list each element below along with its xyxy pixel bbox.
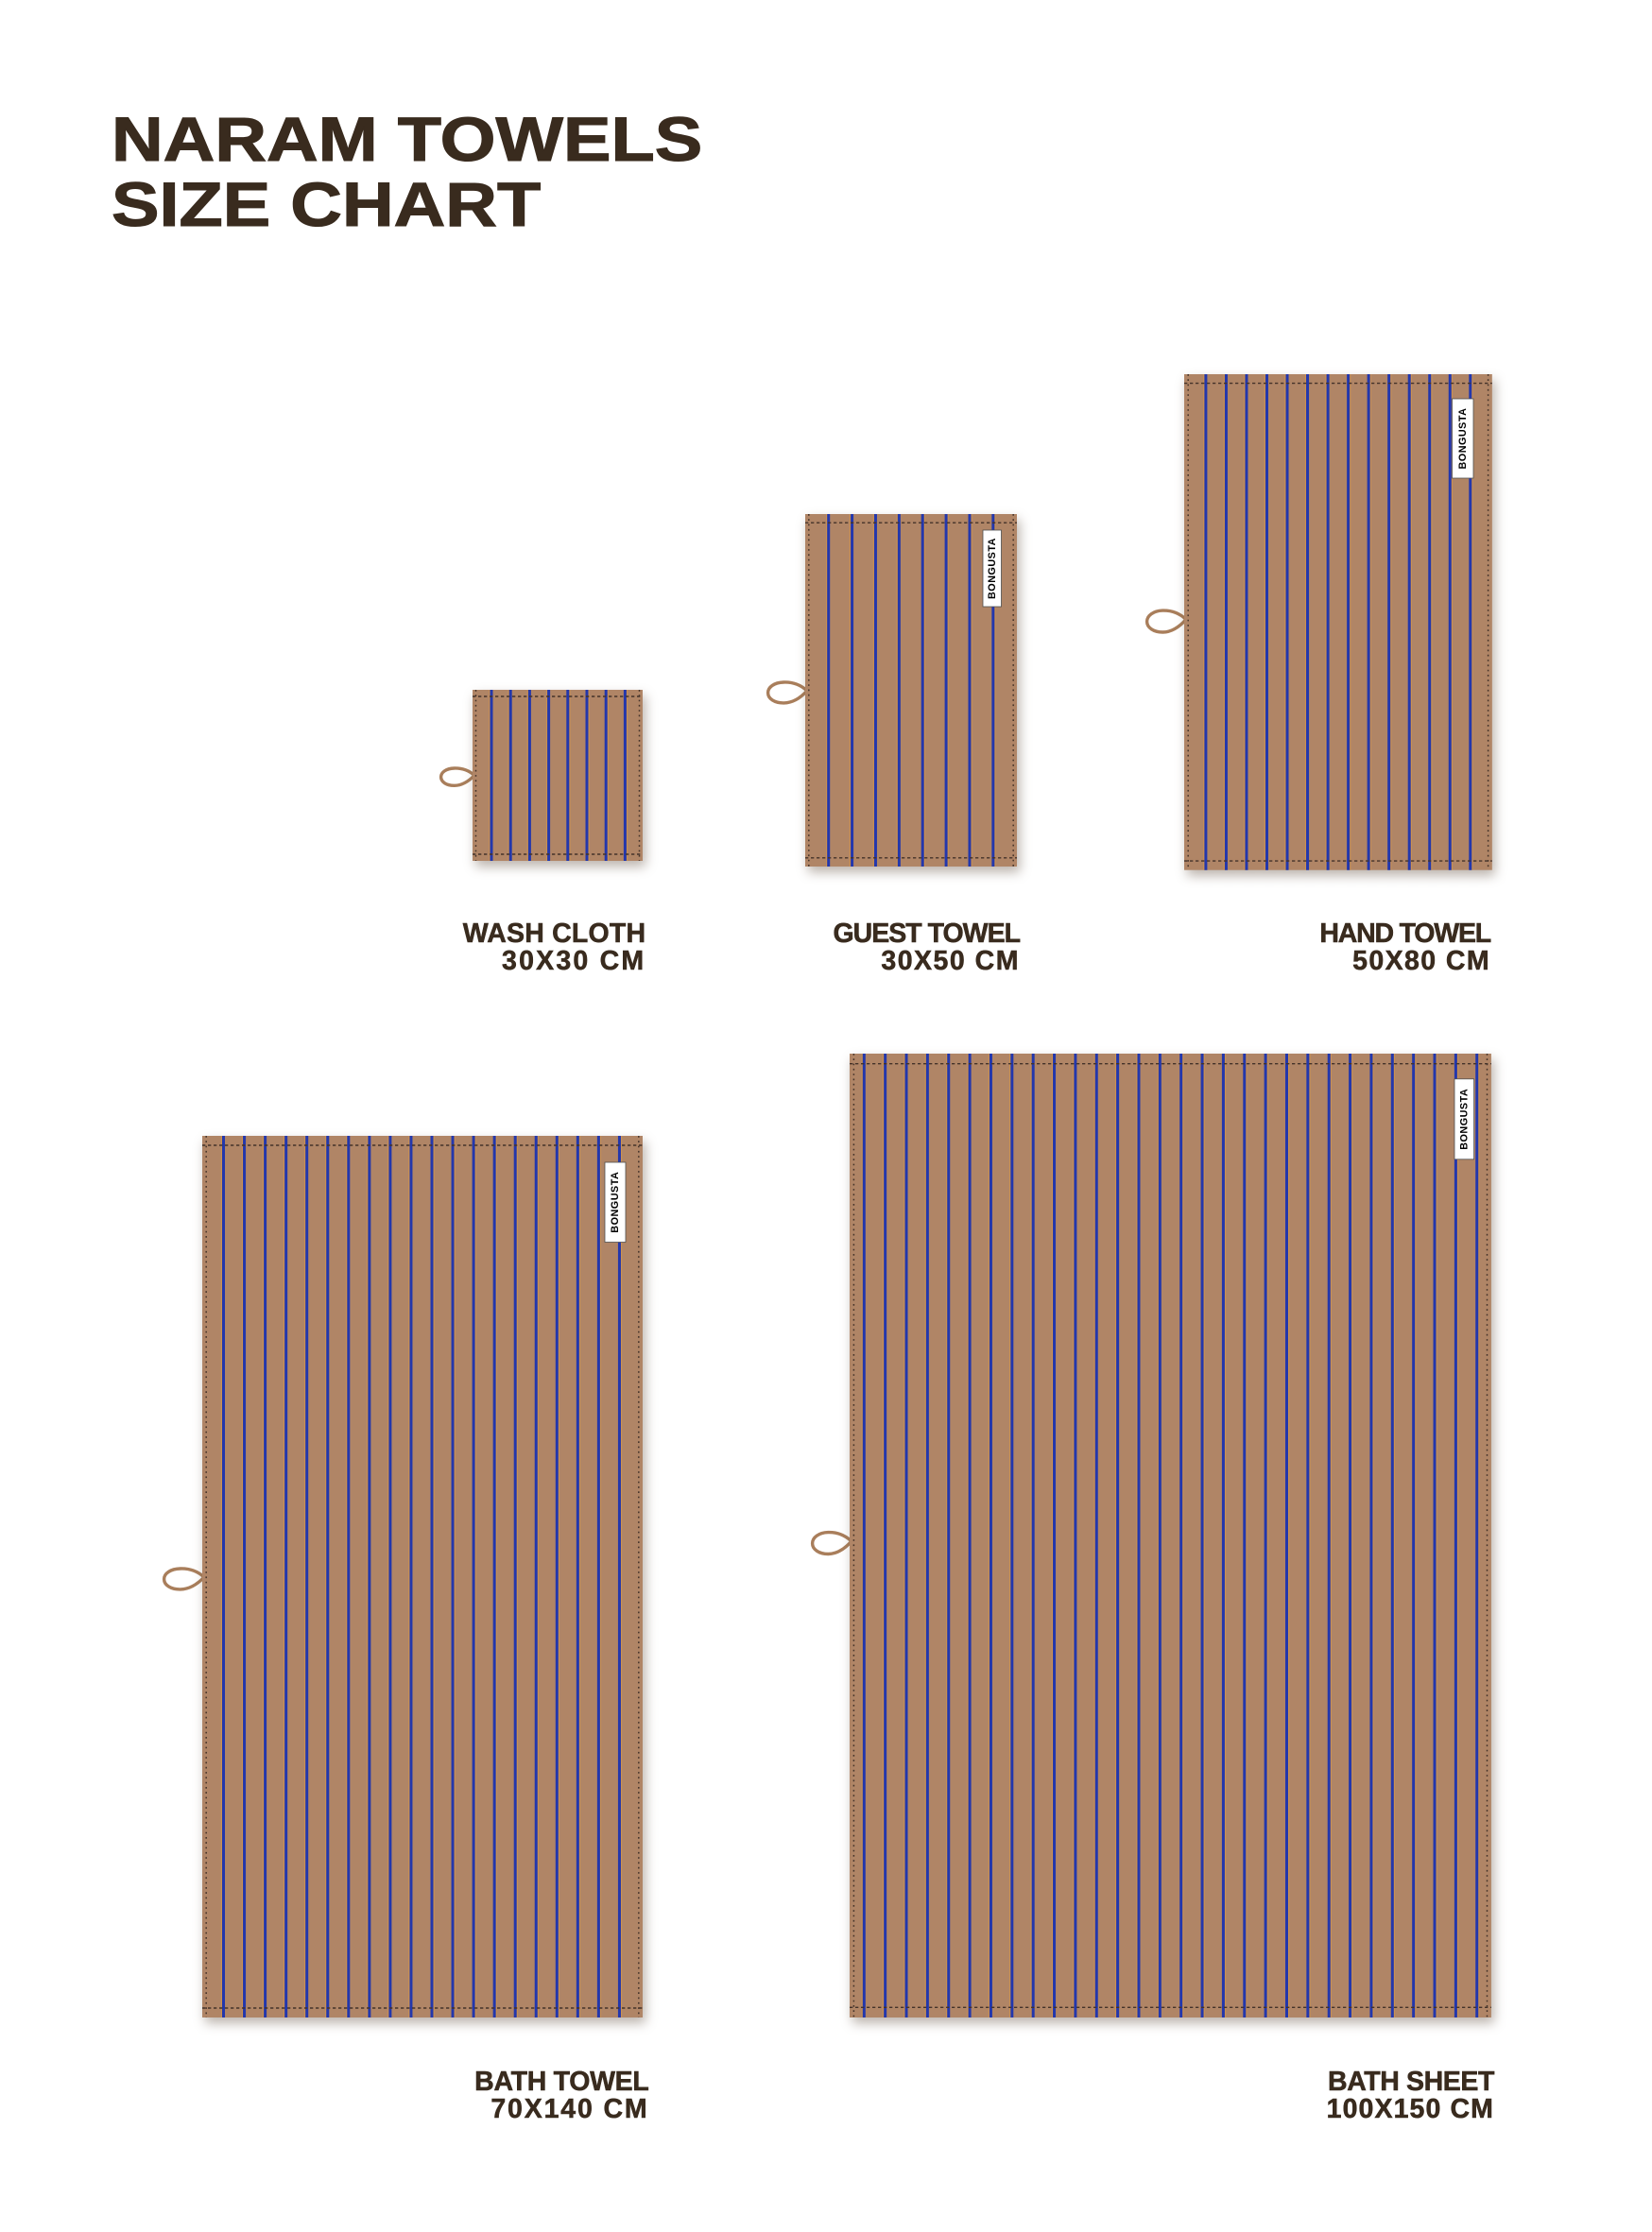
svg-text:BONGUSTA: BONGUSTA xyxy=(610,1172,621,1233)
svg-text:BONGUSTA: BONGUSTA xyxy=(987,538,998,599)
svg-text:BONGUSTA: BONGUSTA xyxy=(1457,407,1469,469)
svg-text:BONGUSTA: BONGUSTA xyxy=(1459,1089,1471,1150)
